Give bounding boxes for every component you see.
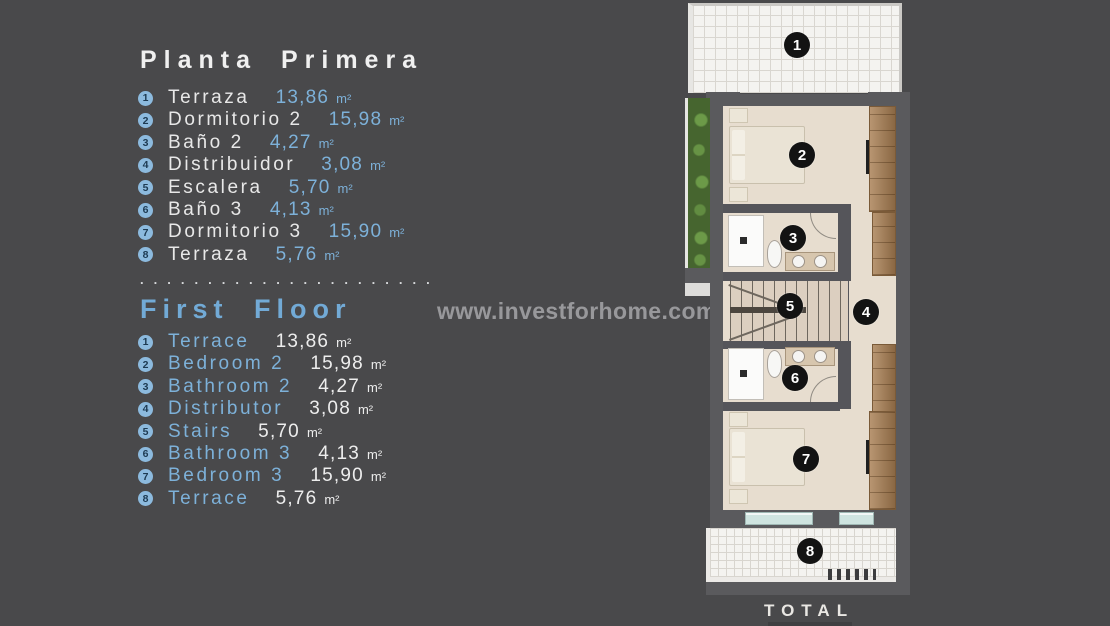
room-row: 7 Bedroom 3 15,90 m² [138,465,386,487]
badge-number: 4 [862,304,870,321]
plan-room-badge: 7 [793,446,819,472]
room-number-circle: 4 [138,158,153,173]
english-title: First Floor [140,294,352,325]
room-area-value: 5,76 [276,244,318,266]
room-number-circle: 7 [138,469,153,484]
sink [814,350,827,363]
toilet-bathroom-2 [767,240,782,268]
sink [792,350,805,363]
room-number-circle: 3 [138,135,153,150]
room-area-unit: m² [336,91,351,106]
nightstand [729,412,748,427]
sink [792,255,805,268]
sink [814,255,827,268]
room-area-unit: m² [389,225,404,240]
wall-segment [710,510,745,528]
railing [685,283,710,296]
wall-segment [813,510,839,528]
badge-number: 8 [806,543,814,560]
interior-wall [723,402,840,411]
room-name: Baño 3 [168,199,244,221]
room-area-value: 5,70 [289,177,331,199]
room-name: Bedroom 3 [168,465,284,487]
room-number-circle: 3 [138,379,153,394]
room-area-value: 4,13 [318,443,360,465]
room-name: Escalera [168,177,263,199]
plan-room-badge: 4 [853,299,879,325]
room-row: 3 Bathroom 2 4,27 m² [138,376,386,398]
room-name: Bathroom 3 [168,443,292,465]
room-number-circle: 5 [138,180,153,195]
plan-room-badge: 2 [789,142,815,168]
room-name: Distributor [168,398,283,420]
wall-segment [706,582,896,595]
room-number-circle: 5 [138,424,153,439]
room-area-unit: m² [389,113,404,128]
interior-wall [723,272,851,281]
badge-number: 7 [802,451,810,468]
room-number-circle: 6 [138,203,153,218]
wardrobe-bedroom-3 [869,411,896,510]
room-row: 7 Dormitorio 3 15,90 m² [138,221,404,243]
wardrobe-handle [866,440,869,474]
floor-plan-poster: Planta Primera 1 Terraza 13,86 m² 2 Dorm… [0,0,1110,626]
cropped-total-value [768,622,852,626]
wardrobe-bedroom-2 [869,106,896,212]
vanity-bathroom-3 [785,347,835,366]
room-name: Baño 2 [168,132,244,154]
room-number-circle: 2 [138,357,153,372]
badge-number: 1 [793,37,801,54]
room-number-circle: 7 [138,225,153,240]
terrace-steps-grate [828,569,876,580]
plan-room-badge: 5 [777,293,803,319]
wardrobe-handle [866,140,869,174]
room-row: 1 Terrace 13,86 m² [138,331,386,353]
room-row: 1 Terraza 13,86 m² [138,87,404,109]
nightstand [729,108,748,123]
room-row: 8 Terraza 5,76 m² [138,244,404,266]
room-name: Dormitorio 2 [168,109,303,131]
watermark: www.investforhome.com [437,298,717,325]
wall-segment [896,528,910,595]
plan-room-badge: 1 [784,32,810,58]
room-name: Terraza [168,244,250,266]
wall-segment [874,510,910,528]
plan-room-badge: 3 [780,225,806,251]
toilet-bathroom-3 [767,350,782,378]
badge-number: 6 [791,370,799,387]
room-name: Stairs [168,421,232,443]
room-area-value: 4,27 [270,132,312,154]
room-row: 8 Terrace 5,76 m² [138,488,386,510]
room-area-value: 4,27 [318,376,360,398]
shower-drain [740,370,747,377]
room-row: 5 Stairs 5,70 m² [138,421,386,443]
room-row: 6 Baño 3 4,13 m² [138,199,404,221]
closet-distributor-top [872,212,896,276]
room-name: Terrace [168,331,250,353]
room-area-unit: m² [324,248,339,263]
room-number-circle: 8 [138,491,153,506]
room-area-value: 3,08 [309,398,351,420]
pillows [732,432,745,482]
pillows [732,130,745,180]
plan-room-badge: 6 [782,365,808,391]
room-area-value: 15,90 [329,221,383,243]
badge-number: 3 [789,230,797,247]
room-row: 2 Dormitorio 2 15,98 m² [138,109,404,131]
interior-wall [838,204,851,278]
room-name: Terrace [168,488,250,510]
room-area-unit: m² [338,181,353,196]
room-name: Dormitorio 3 [168,221,303,243]
room-number-circle: 8 [138,247,153,262]
spanish-title: Planta Primera [140,46,423,75]
room-area-value: 5,76 [276,488,318,510]
room-number-circle: 1 [138,335,153,350]
interior-wall [838,341,851,409]
room-name: Distribuidor [168,154,295,176]
spanish-room-list: 1 Terraza 13,86 m² 2 Dormitorio 2 15,98 … [138,87,404,266]
shower-bathroom-2 [728,215,764,267]
room-area-unit: m² [358,402,373,417]
room-area-value: 3,08 [321,154,363,176]
room-area-unit: m² [336,335,351,350]
nightstand [729,489,748,504]
room-area-unit: m² [324,492,339,507]
room-name: Bedroom 2 [168,353,284,375]
shower-bathroom-3 [728,348,764,400]
interior-wall [723,204,840,213]
room-name: Bathroom 2 [168,376,292,398]
room-area-unit: m² [371,469,386,484]
room-area-unit: m² [319,136,334,151]
room-number-circle: 1 [138,91,153,106]
room-name: Terraza [168,87,250,109]
total-label: TOTAL [764,601,854,621]
room-area-value: 13,86 [276,331,330,353]
room-row: 4 Distribuidor 3,08 m² [138,154,404,176]
nightstand [729,187,748,202]
room-area-value: 13,86 [276,87,330,109]
room-area-value: 5,70 [258,421,300,443]
room-area-unit: m² [370,158,385,173]
room-area-unit: m² [307,425,322,440]
room-area-unit: m² [371,357,386,372]
room-row: 2 Bedroom 2 15,98 m² [138,353,386,375]
room-area-value: 15,90 [310,465,364,487]
room-number-circle: 2 [138,113,153,128]
room-row: 3 Baño 2 4,27 m² [138,132,404,154]
sliding-glass-door [839,512,874,525]
badge-number: 2 [798,147,806,164]
english-room-list: 1 Terrace 13,86 m² 2 Bedroom 2 15,98 m² … [138,331,386,510]
wall-segment [685,268,710,283]
floor-plan-drawing: 1 2 3 4 5 6 [682,0,910,600]
room-number-circle: 6 [138,447,153,462]
room-row: 5 Escalera 5,70 m² [138,177,404,199]
room-area-unit: m² [319,203,334,218]
room-area-value: 15,98 [310,353,364,375]
sliding-glass-door [745,512,813,525]
room-number-circle: 4 [138,402,153,417]
room-row: 6 Bathroom 3 4,13 m² [138,443,386,465]
room-area-unit: m² [367,447,382,462]
room-area-value: 4,13 [270,199,312,221]
room-area-value: 15,98 [329,109,383,131]
plan-room-badge: 8 [797,538,823,564]
badge-number: 5 [786,298,794,315]
dotted-separator: . . . . . . . . . . . . . . . . . . . . … [140,272,433,287]
closet-distributor-bottom [872,344,896,418]
room-area-unit: m² [367,380,382,395]
shower-drain [740,237,747,244]
garden-strip [685,98,710,270]
vanity-bathroom-2 [785,252,835,271]
room-row: 4 Distributor 3,08 m² [138,398,386,420]
